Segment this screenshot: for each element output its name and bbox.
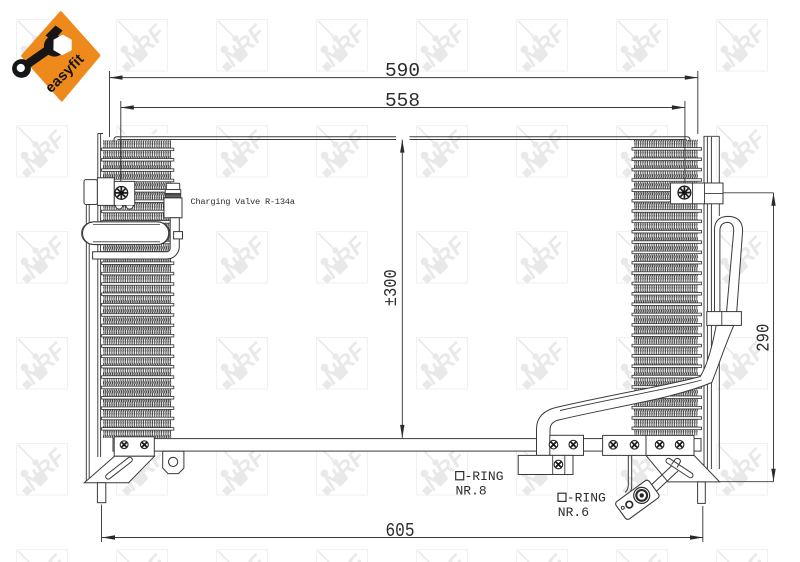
svg-text:605: 605 (386, 520, 415, 542)
svg-text:Charging Valve R-134a: Charging Valve R-134a (191, 197, 295, 207)
svg-text:NR.8: NR.8 (456, 483, 487, 498)
svg-text:590: 590 (385, 60, 420, 82)
svg-text:558: 558 (385, 90, 420, 112)
svg-text:290: 290 (754, 324, 774, 352)
svg-text:-RING: -RING (465, 469, 504, 484)
svg-text:-RING: -RING (567, 491, 606, 506)
svg-text:±300: ±300 (382, 269, 402, 306)
svg-text:NR.6: NR.6 (558, 505, 589, 520)
